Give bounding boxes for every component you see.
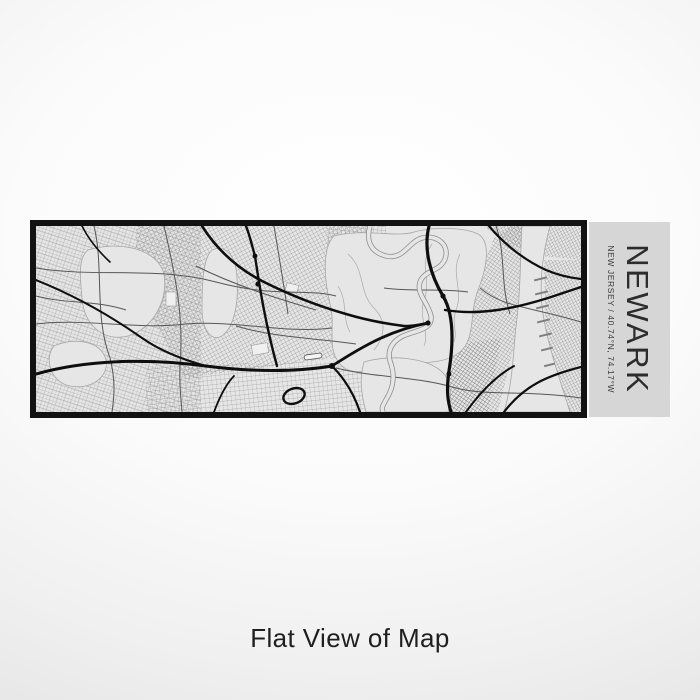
backdrop: NEWARK NEW JERSEY / 40.74°N, 74.17°W Fla… [0,0,700,700]
map-label-rotated: NEWARK NEW JERSEY / 40.74°N, 74.17°W [606,245,653,395]
map-label-panel: NEWARK NEW JERSEY / 40.74°N, 74.17°W [589,222,670,417]
map-image [36,226,581,412]
view-caption: Flat View of Map [0,623,700,654]
map-title: NEWARK [622,245,653,395]
map-flat-view [30,220,587,418]
map-subtitle: NEW JERSEY / 40.74°N, 74.17°W [606,245,615,395]
